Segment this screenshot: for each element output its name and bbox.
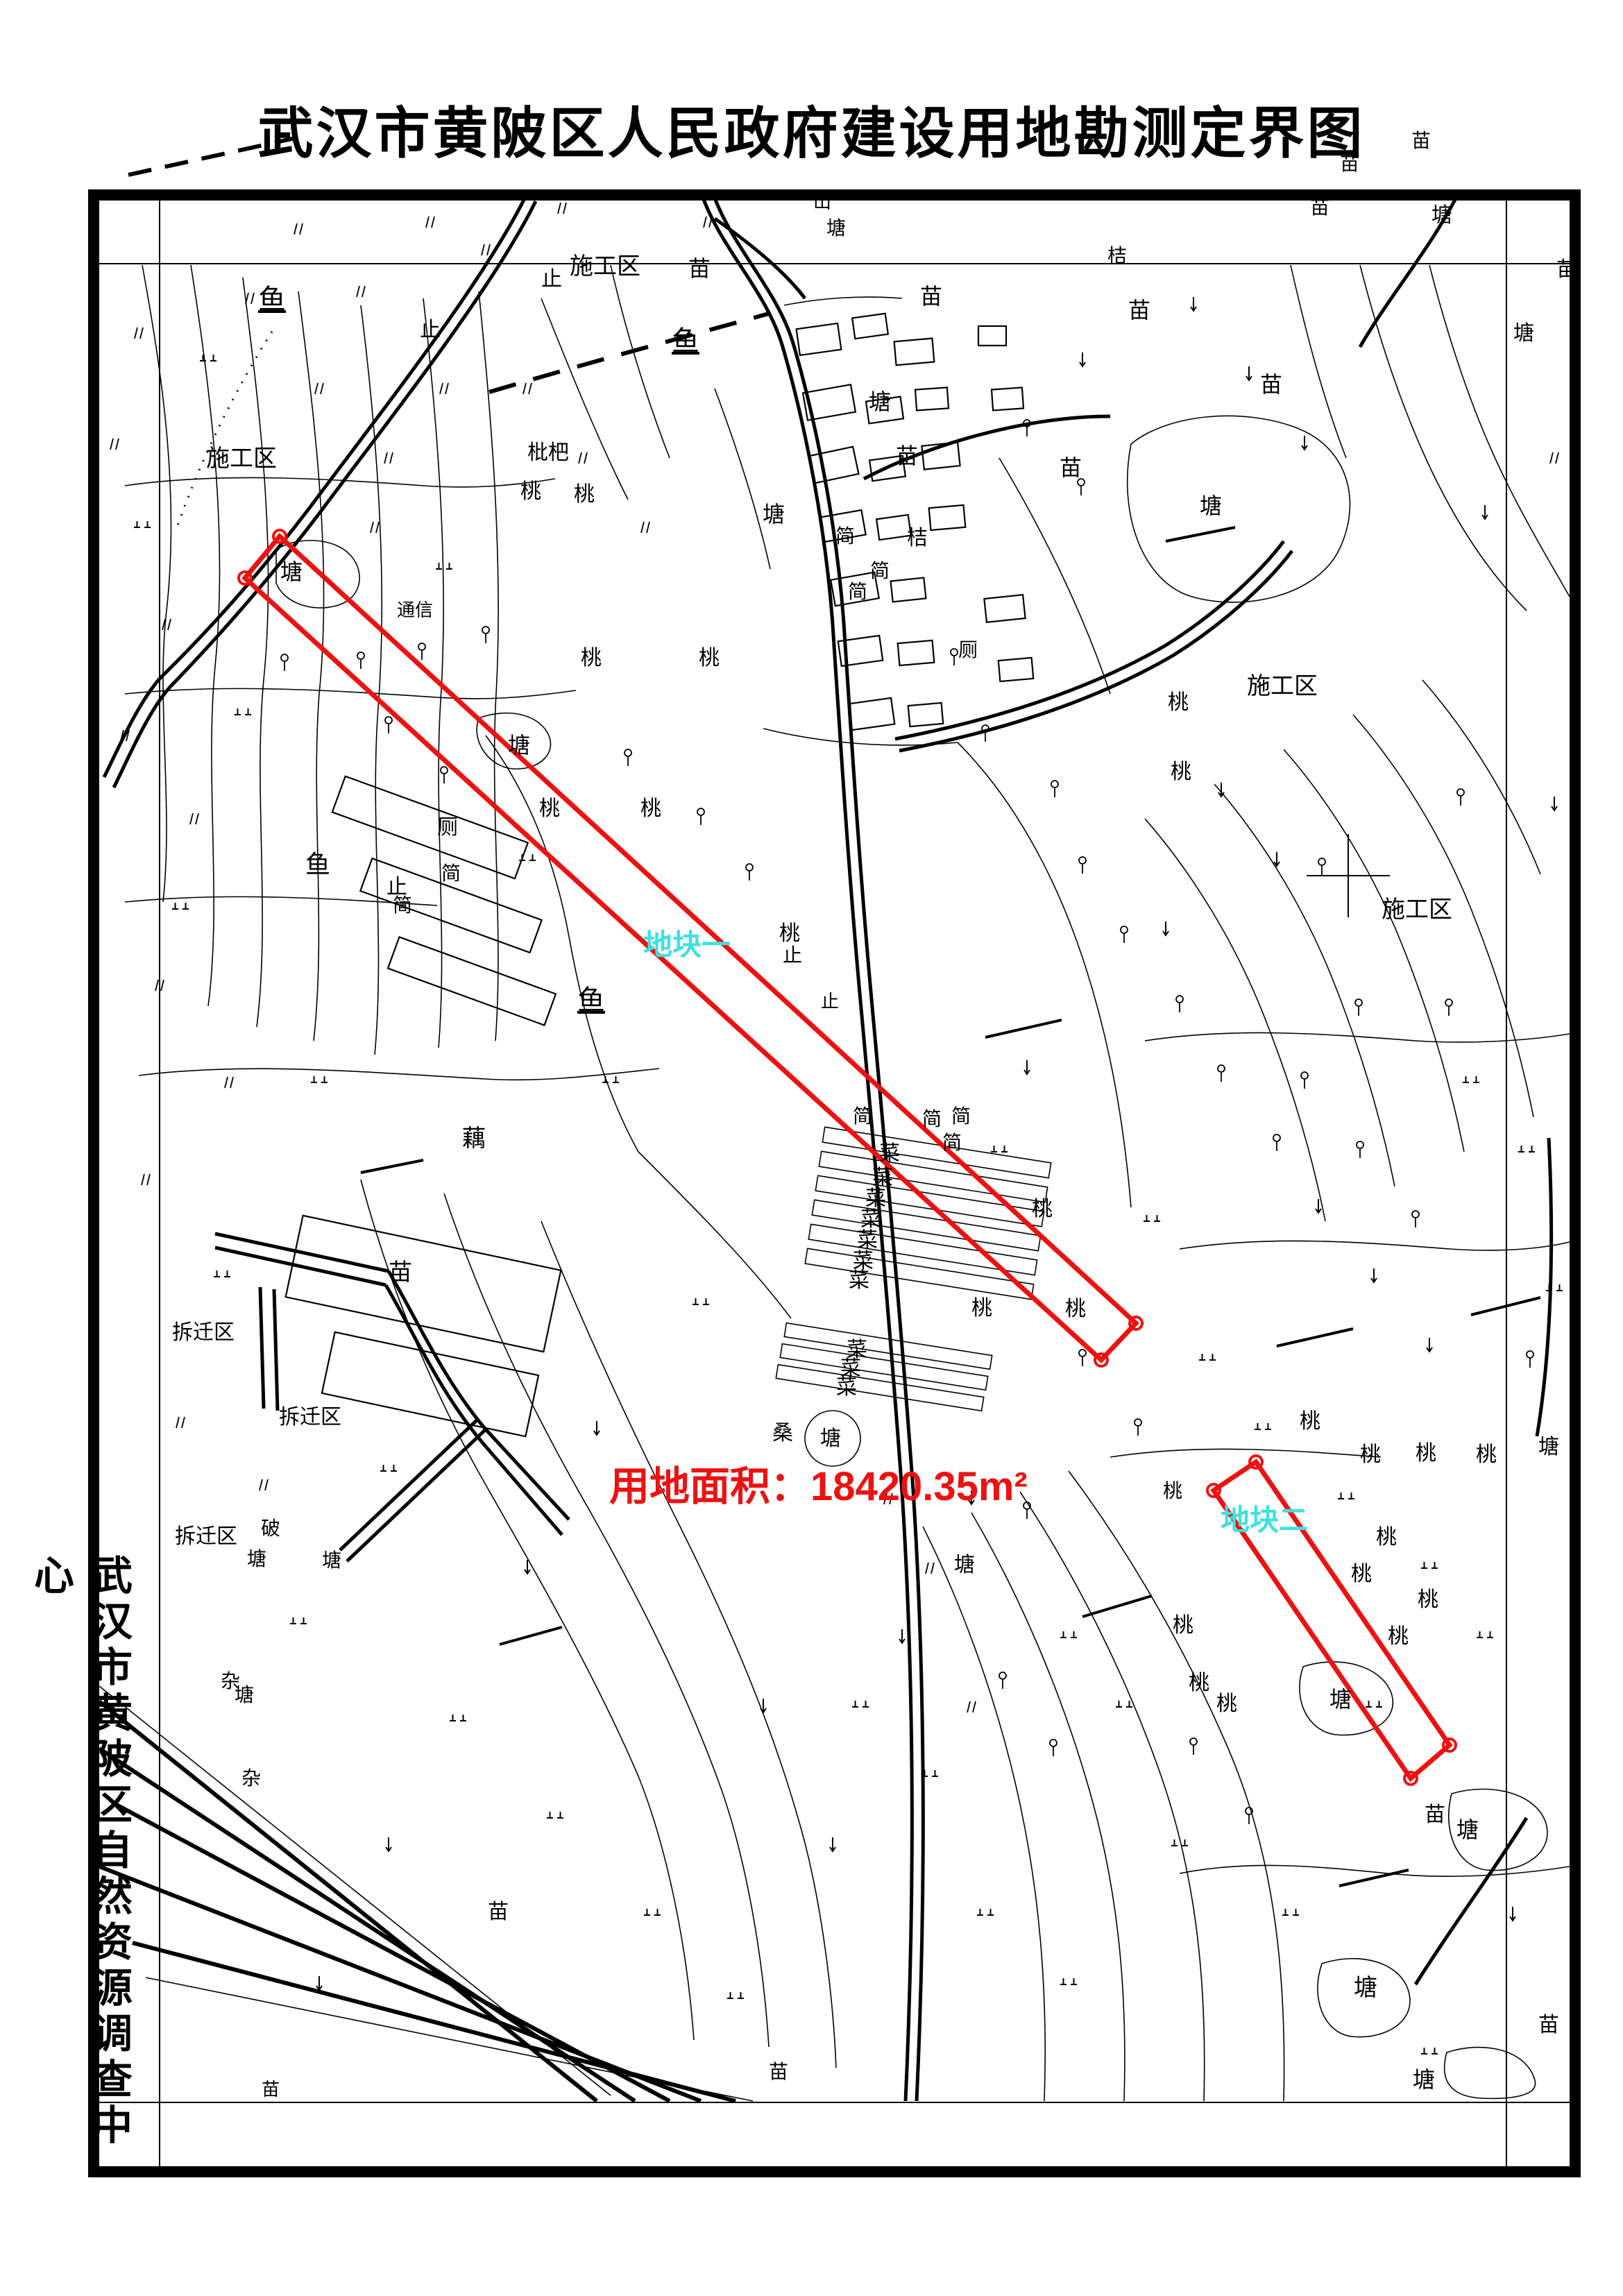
tree-symbol: [385, 717, 392, 733]
map-label: 厕: [958, 639, 978, 661]
tree-symbol: [441, 767, 448, 783]
tree-symbol: [1050, 1740, 1057, 1756]
grass-symbol: [1546, 1284, 1563, 1291]
map-label: 桔: [1107, 245, 1127, 266]
map-label: 塘: [820, 1427, 841, 1450]
grass-symbol: [1282, 1909, 1299, 1915]
map-label: 桃: [1032, 1198, 1053, 1221]
tree-symbol: [1079, 857, 1086, 874]
map-label: 鱼: [577, 985, 605, 1016]
map-label: 简: [922, 1108, 942, 1130]
map-label: 塘: [954, 1554, 975, 1576]
tree-symbol: [1121, 926, 1128, 943]
grass-symbol: [1338, 1493, 1354, 1499]
tree-symbol: [418, 643, 425, 660]
tree-symbol: [1190, 1738, 1197, 1755]
map-label: 塘: [869, 389, 891, 414]
tick-symbol: [1550, 452, 1558, 464]
map-label: 山: [813, 192, 831, 212]
map-label: 藕: [462, 1125, 486, 1152]
map-label: 桃: [971, 1297, 992, 1320]
grass-symbol: [436, 563, 452, 569]
map-label: 苗: [1411, 130, 1431, 151]
tree-symbol: [1176, 996, 1183, 1012]
tree-symbol: [1355, 999, 1362, 1016]
tree-symbol: [1079, 1350, 1086, 1366]
tree-symbol: [1051, 781, 1058, 797]
map-label: 桃: [1388, 1625, 1409, 1648]
grass-symbol: [1116, 1701, 1132, 1707]
arrow-symbol: [594, 1421, 600, 1435]
map-label: 苗: [389, 1259, 412, 1286]
map-label: 桃: [520, 480, 541, 503]
map-label: 施工区: [1247, 673, 1318, 699]
tick-symbol: [260, 1479, 268, 1490]
map-label: 简: [942, 1132, 962, 1153]
tree-symbol: [1445, 999, 1452, 1016]
map-label: 桃: [1351, 1563, 1372, 1585]
map-label: 鱼: [672, 326, 699, 357]
map-label: 桃: [1168, 691, 1189, 714]
map-label: 苗: [1556, 258, 1577, 281]
map-label: 苗: [1538, 2014, 1559, 2036]
map-label: 塘: [1431, 204, 1452, 227]
map-label: 桃: [574, 483, 595, 506]
arrow-symbol: [316, 1976, 322, 1990]
grass-symbol: [547, 1812, 563, 1818]
area-annotation: 用地面积：18420.35m²: [609, 1464, 1028, 1509]
map-label: 苗: [1310, 196, 1329, 218]
grass-symbol: [134, 521, 151, 527]
grass-symbol: [380, 1465, 397, 1471]
map-label: 桃: [1476, 1443, 1497, 1466]
map-label: 塘: [1538, 1436, 1559, 1459]
map-label: 杂: [241, 1767, 261, 1789]
map-label: 菜: [857, 1229, 878, 1252]
map-label: 桃: [1065, 1298, 1086, 1320]
grass-symbol: [692, 1298, 709, 1304]
grass-symbol: [290, 1617, 307, 1624]
tree-symbol: [1078, 479, 1085, 495]
plot1-annotation: 地块一: [643, 928, 731, 961]
tick-symbol: [967, 1701, 976, 1712]
map-label: 塘: [826, 217, 846, 239]
tick-symbol: [926, 1563, 934, 1574]
map-label: 简: [441, 862, 461, 884]
arrow-symbol: [830, 1837, 835, 1851]
map-label: 施工区: [206, 445, 277, 472]
tree-symbol: [1273, 1134, 1280, 1151]
map-label: 拆迁区: [279, 1406, 341, 1429]
map-label: 厕: [437, 816, 458, 839]
grass-symbol: [311, 1076, 328, 1082]
tree-symbol: [482, 627, 489, 643]
map-label: 桃: [699, 647, 720, 670]
grass-symbol: [727, 1992, 744, 1998]
map-label: 菜: [836, 1376, 857, 1399]
grass-symbol: [1060, 1978, 1077, 1984]
tick-symbol: [135, 328, 143, 339]
map-label: 桃: [1173, 1614, 1193, 1637]
arrow-symbol: [1080, 352, 1085, 366]
tree-symbol: [1412, 1211, 1419, 1227]
map-label: 塘: [1513, 322, 1534, 345]
map-label: 塘: [763, 502, 785, 527]
map-label: 通信: [397, 599, 433, 620]
map-label: 苗: [896, 443, 918, 468]
map-label: 桃: [1163, 1480, 1182, 1502]
grass-symbol: [602, 1076, 619, 1082]
arrow-symbol: [1163, 921, 1169, 935]
tick-symbol: [440, 383, 448, 394]
tree-symbol: [1457, 789, 1464, 806]
map-label: 塘: [1456, 1817, 1479, 1842]
tick-symbol: [190, 813, 198, 824]
grass-symbol: [1421, 2048, 1438, 2054]
tree-symbol: [1357, 1141, 1363, 1158]
map-label: 菜: [872, 1166, 893, 1189]
map-label: 桃: [539, 797, 560, 820]
arrow-symbol: [760, 1699, 766, 1712]
grass-symbol: [519, 854, 536, 860]
map-label: 止: [783, 944, 802, 966]
map-label: 止: [541, 268, 562, 291]
tree-symbol: [1246, 1808, 1252, 1824]
tick-symbol: [315, 383, 323, 394]
map-label: 塘: [247, 1548, 266, 1570]
map-label: 破: [261, 1517, 280, 1539]
grass-symbol: [200, 355, 216, 361]
map-label: 桃: [640, 797, 661, 820]
map-label: 简: [870, 560, 890, 581]
grass-symbol: [991, 1146, 1008, 1152]
map-label: 桃: [1360, 1443, 1381, 1466]
arrow-symbol: [1316, 1199, 1321, 1213]
tick-symbol: [176, 1417, 185, 1428]
tree-symbol: [1218, 1065, 1225, 1082]
tick-symbol: [142, 1174, 150, 1185]
map-label: 止: [420, 318, 441, 341]
map-label: 苗: [688, 256, 711, 281]
map-label: 塘: [1413, 2067, 1435, 2092]
tick-symbol: [641, 522, 649, 533]
tree-symbol: [697, 808, 704, 825]
plot2-annotation: 地块二: [1221, 1504, 1308, 1536]
arrow-symbol: [1510, 1907, 1515, 1921]
grass-symbol: [1477, 1631, 1493, 1638]
arrow-symbol: [1302, 436, 1307, 450]
map-label: 枇杷: [527, 441, 569, 464]
map-label: 塘: [1329, 1687, 1352, 1712]
tree-symbol: [1301, 1072, 1308, 1089]
tick-symbol: [523, 383, 532, 394]
red-parcel-overlay: [239, 530, 1456, 1785]
tree-symbol: [999, 1672, 1006, 1689]
tick-symbol: [246, 293, 254, 304]
arrow-symbol: [1191, 297, 1196, 311]
map-label: 简: [951, 1105, 971, 1127]
map-label: 简: [848, 581, 867, 602]
tick-symbol: [294, 223, 303, 235]
map-label: 桃: [779, 922, 800, 945]
grass-symbol: [1421, 1562, 1438, 1568]
tree-symbol: [746, 864, 753, 881]
map-label: 桑: [772, 1422, 793, 1445]
map-label: 苗: [488, 1900, 509, 1923]
grass-symbol: [977, 1909, 994, 1915]
arrow-symbol: [1246, 366, 1252, 380]
map-label: 桃: [1216, 1692, 1237, 1715]
grass-symbol: [1144, 1215, 1160, 1221]
map-label: 塘: [1354, 1975, 1377, 2001]
map-label: 苗: [1260, 372, 1282, 397]
arrow-symbol: [899, 1629, 905, 1643]
map-labels: 用地面积：18420.35m²地块一地块二施工区施工区施工区施工区鱼鱼鱼鱼塘塘塘…: [172, 130, 1577, 2100]
tree-symbol: [624, 749, 631, 766]
map-label: 桃: [1300, 1410, 1320, 1433]
grass-symbol: [921, 1770, 938, 1776]
grass-symbol: [1366, 1701, 1382, 1707]
map-label: 苗: [1340, 153, 1359, 174]
map-linework: [125, 137, 1570, 2101]
map-label: 桔: [907, 527, 928, 550]
tick-symbol: [384, 452, 393, 464]
tick-symbol: [558, 203, 566, 214]
grass-symbol: [1060, 1631, 1077, 1638]
map-label: 拆迁区: [172, 1321, 235, 1344]
tree-symbol: [951, 649, 958, 665]
grass-symbol: [644, 1909, 661, 1915]
map-label: 鱼: [258, 284, 286, 315]
map-label: 施工区: [1382, 896, 1452, 923]
grass-symbol: [214, 1270, 230, 1277]
grass-symbol: [172, 903, 189, 909]
map-label: 桃: [1416, 1442, 1436, 1465]
tree-symbol: [357, 652, 364, 669]
map-label: 塘: [1200, 493, 1222, 518]
map-label: 菜: [849, 1269, 869, 1292]
tree-symbol: [1527, 1351, 1533, 1368]
grid-cross: [1307, 834, 1390, 917]
map-label: 桃: [1171, 760, 1191, 783]
map-label: 苗: [1128, 298, 1150, 323]
map-label: 菜: [879, 1142, 900, 1165]
tick-symbol: [482, 244, 490, 255]
tick-symbol: [357, 286, 365, 297]
map-label: 苗: [262, 2079, 280, 2100]
tick-symbol: [371, 522, 379, 533]
tick-symbol: [579, 452, 587, 464]
tick-symbol: [225, 1077, 233, 1088]
arrow-symbol: [1552, 797, 1557, 810]
map-label: 简: [393, 894, 412, 916]
map-label: 简: [835, 525, 855, 547]
map-label: 塘: [322, 1549, 341, 1571]
arrow-symbol: [1024, 1060, 1030, 1074]
arrow-symbol: [1371, 1268, 1377, 1282]
map-label: 菜: [860, 1208, 881, 1231]
grass-symbol: [852, 1701, 869, 1707]
grass-symbol: [1518, 1146, 1535, 1152]
map-label: 施工区: [570, 253, 640, 280]
map-label: 苗: [920, 284, 942, 309]
map-label: 桃: [1418, 1588, 1438, 1611]
rail-corridor: [99, 1686, 753, 2101]
grass-symbol: [1255, 1423, 1271, 1429]
map-label: 苗: [769, 2061, 788, 2082]
map-label: 桃: [1376, 1526, 1397, 1549]
tree-symbol: [1135, 1419, 1141, 1436]
map-label: 杂: [221, 1670, 240, 1692]
grass-symbol: [1199, 1354, 1216, 1360]
map-label: 简: [853, 1105, 872, 1127]
grass-symbol: [450, 1715, 466, 1721]
map-label: 苗: [1425, 1803, 1445, 1826]
tick-symbol: [110, 439, 119, 450]
arrow-symbol: [386, 1837, 391, 1851]
grass-symbol: [1463, 1076, 1479, 1082]
map-label: 桃: [581, 647, 602, 670]
map-label: 止: [821, 991, 839, 1012]
map-label: 苗: [1060, 455, 1082, 480]
map-label: 鱼: [305, 850, 330, 878]
tree-symbol: [281, 654, 288, 671]
arrow-symbol: [1427, 1338, 1432, 1352]
map-label: 菜: [865, 1187, 886, 1210]
map-canvas: 用地面积：18420.35m²地块一地块二施工区施工区施工区施工区鱼鱼鱼鱼塘塘塘…: [0, 0, 1623, 2296]
map-label: 桃: [1189, 1672, 1209, 1694]
map-label: 拆迁区: [175, 1525, 237, 1548]
tick-symbol: [162, 619, 171, 630]
map-label: 塘: [280, 559, 303, 584]
tree-symbol: [1318, 858, 1325, 875]
grass-symbol: [235, 708, 251, 715]
arrow-symbol: [1274, 852, 1280, 866]
map-label: 塘: [508, 733, 530, 758]
arrow-symbol: [1482, 505, 1488, 519]
tick-symbol: [426, 216, 434, 228]
